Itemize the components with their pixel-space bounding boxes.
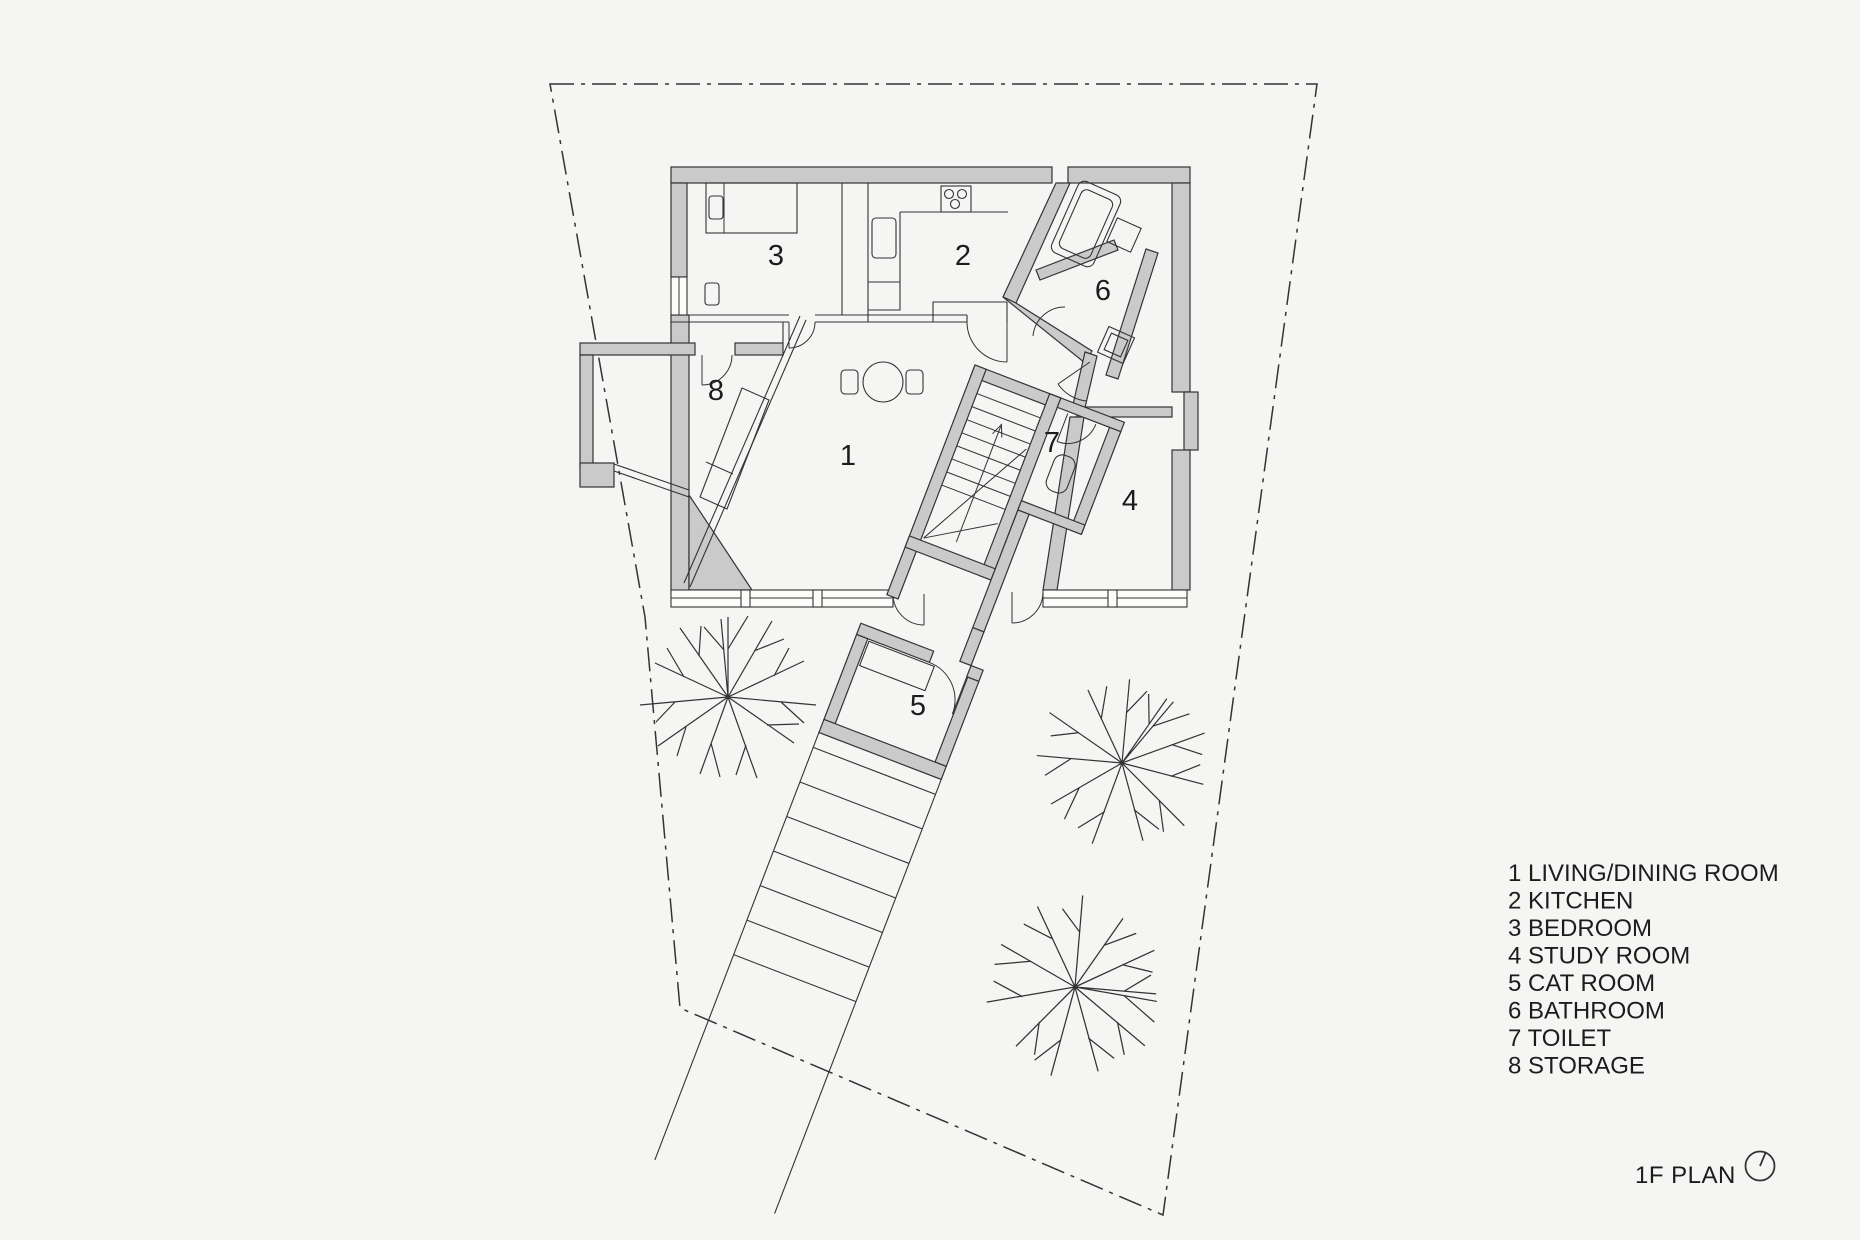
room-label-living: 1 [840, 440, 856, 472]
legend-item: 4 STUDY ROOM [1508, 943, 1690, 970]
bedside-table [705, 283, 719, 305]
floor-plan-page: 1 2 3 4 5 6 7 8 1 LIVING/DINING ROOM 2 K… [0, 0, 1860, 1240]
burner-icon [951, 200, 960, 209]
north-arrow-icon [1746, 1152, 1775, 1181]
legend-item: 7 TOILET [1508, 1025, 1612, 1052]
title-block: 1F PLAN [1635, 1152, 1775, 1190]
kitchen-sink [872, 218, 896, 258]
tree-icon [976, 882, 1174, 1092]
kitchen-fixtures [868, 186, 1008, 322]
legend-item: 8 STORAGE [1508, 1053, 1645, 1080]
burner-icon [958, 190, 967, 199]
dining-set [841, 362, 923, 402]
dining-table [863, 362, 903, 402]
cat-room [819, 623, 983, 779]
room-label-bedroom: 3 [768, 240, 784, 272]
room-label-toilet: 7 [1044, 427, 1060, 459]
pillow [709, 196, 723, 219]
legend-item: 1 LIVING/DINING ROOM [1508, 860, 1779, 887]
tree-icon [640, 616, 816, 778]
trees [640, 616, 1241, 1092]
plan-title: 1F PLAN [1635, 1162, 1736, 1189]
floor-plan-canvas: 1 2 3 4 5 6 7 8 1 LIVING/DINING ROOM 2 K… [0, 0, 1860, 1240]
legend-item: 5 CAT ROOM [1508, 970, 1655, 997]
chair [906, 370, 923, 394]
walls [580, 167, 1198, 592]
chair [841, 370, 858, 394]
room-label-bathroom: 6 [1095, 275, 1111, 307]
bed [706, 183, 797, 233]
room-label-cat-room: 5 [910, 690, 926, 722]
legend-item: 3 BEDROOM [1508, 915, 1652, 942]
room-label-storage: 8 [708, 375, 724, 407]
room-label-study: 4 [1122, 485, 1138, 517]
exterior-stairs [652, 732, 941, 1213]
legend-item: 2 KITCHEN [1508, 888, 1633, 915]
site-boundary [550, 84, 1317, 1215]
tree-icon [1003, 644, 1242, 881]
legend: 1 LIVING/DINING ROOM 2 KITCHEN 3 BEDROOM… [1508, 860, 1779, 1080]
burner-icon [945, 190, 954, 199]
room-label-kitchen: 2 [955, 240, 971, 272]
stair-wing [652, 360, 1124, 1229]
legend-item: 6 BATHROOM [1508, 998, 1665, 1025]
